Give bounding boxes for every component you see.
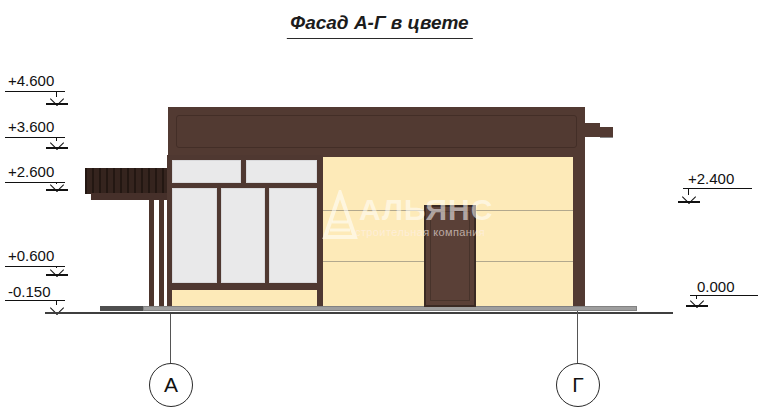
elevation-label: 0.000	[697, 278, 735, 295]
leader-line	[690, 295, 758, 296]
roof-protrusion-upper	[585, 123, 600, 137]
roof-inner-outline	[176, 115, 577, 148]
entrance-door	[424, 205, 476, 307]
ground-line	[45, 312, 673, 314]
elevation-label: -0.150	[8, 283, 51, 300]
roof-protrusion-beam	[600, 127, 613, 138]
door-panel-line	[430, 211, 470, 301]
axis-line-g	[577, 311, 578, 363]
leader-line	[683, 188, 752, 189]
entrance-canopy	[85, 168, 168, 194]
elevation-label: +2.600	[8, 163, 54, 180]
corner-pilaster	[573, 157, 585, 306]
elevation-label: +4.600	[8, 72, 54, 89]
elevation-label: +2.400	[688, 170, 734, 187]
window-pane-2	[221, 188, 265, 283]
level-line	[686, 305, 708, 307]
canopy-post-2	[159, 200, 164, 307]
axis-circle-g: Г	[556, 363, 600, 407]
plinth	[143, 306, 637, 311]
axis-label-a: А	[164, 373, 178, 397]
level-line	[678, 201, 700, 203]
window-pane-1	[172, 188, 217, 283]
entrance-step	[100, 306, 145, 311]
level-line	[46, 103, 68, 105]
level-line	[46, 147, 68, 149]
transom-pane-2	[246, 160, 317, 183]
drawing-title: Фасад А-Г в цвете	[286, 12, 472, 39]
facade-drawing: Фасад А-Г в цвете +4.600 +3.600 +2.600 +…	[0, 0, 759, 418]
elevation-label: +3.600	[8, 118, 54, 135]
level-line	[46, 274, 68, 276]
window-pane-3	[269, 188, 317, 283]
building-roof	[168, 107, 585, 158]
storefront-frame	[167, 155, 323, 307]
axis-label-g: Г	[572, 373, 583, 397]
axis-line-a	[170, 314, 171, 363]
elevation-label: +0.600	[8, 247, 54, 264]
canopy-fascia	[91, 193, 168, 200]
spandrel-panel	[172, 290, 317, 306]
canopy-post-1	[149, 200, 154, 307]
axis-circle-a: А	[149, 363, 193, 407]
transom-pane-1	[172, 160, 241, 183]
level-line	[46, 189, 68, 191]
